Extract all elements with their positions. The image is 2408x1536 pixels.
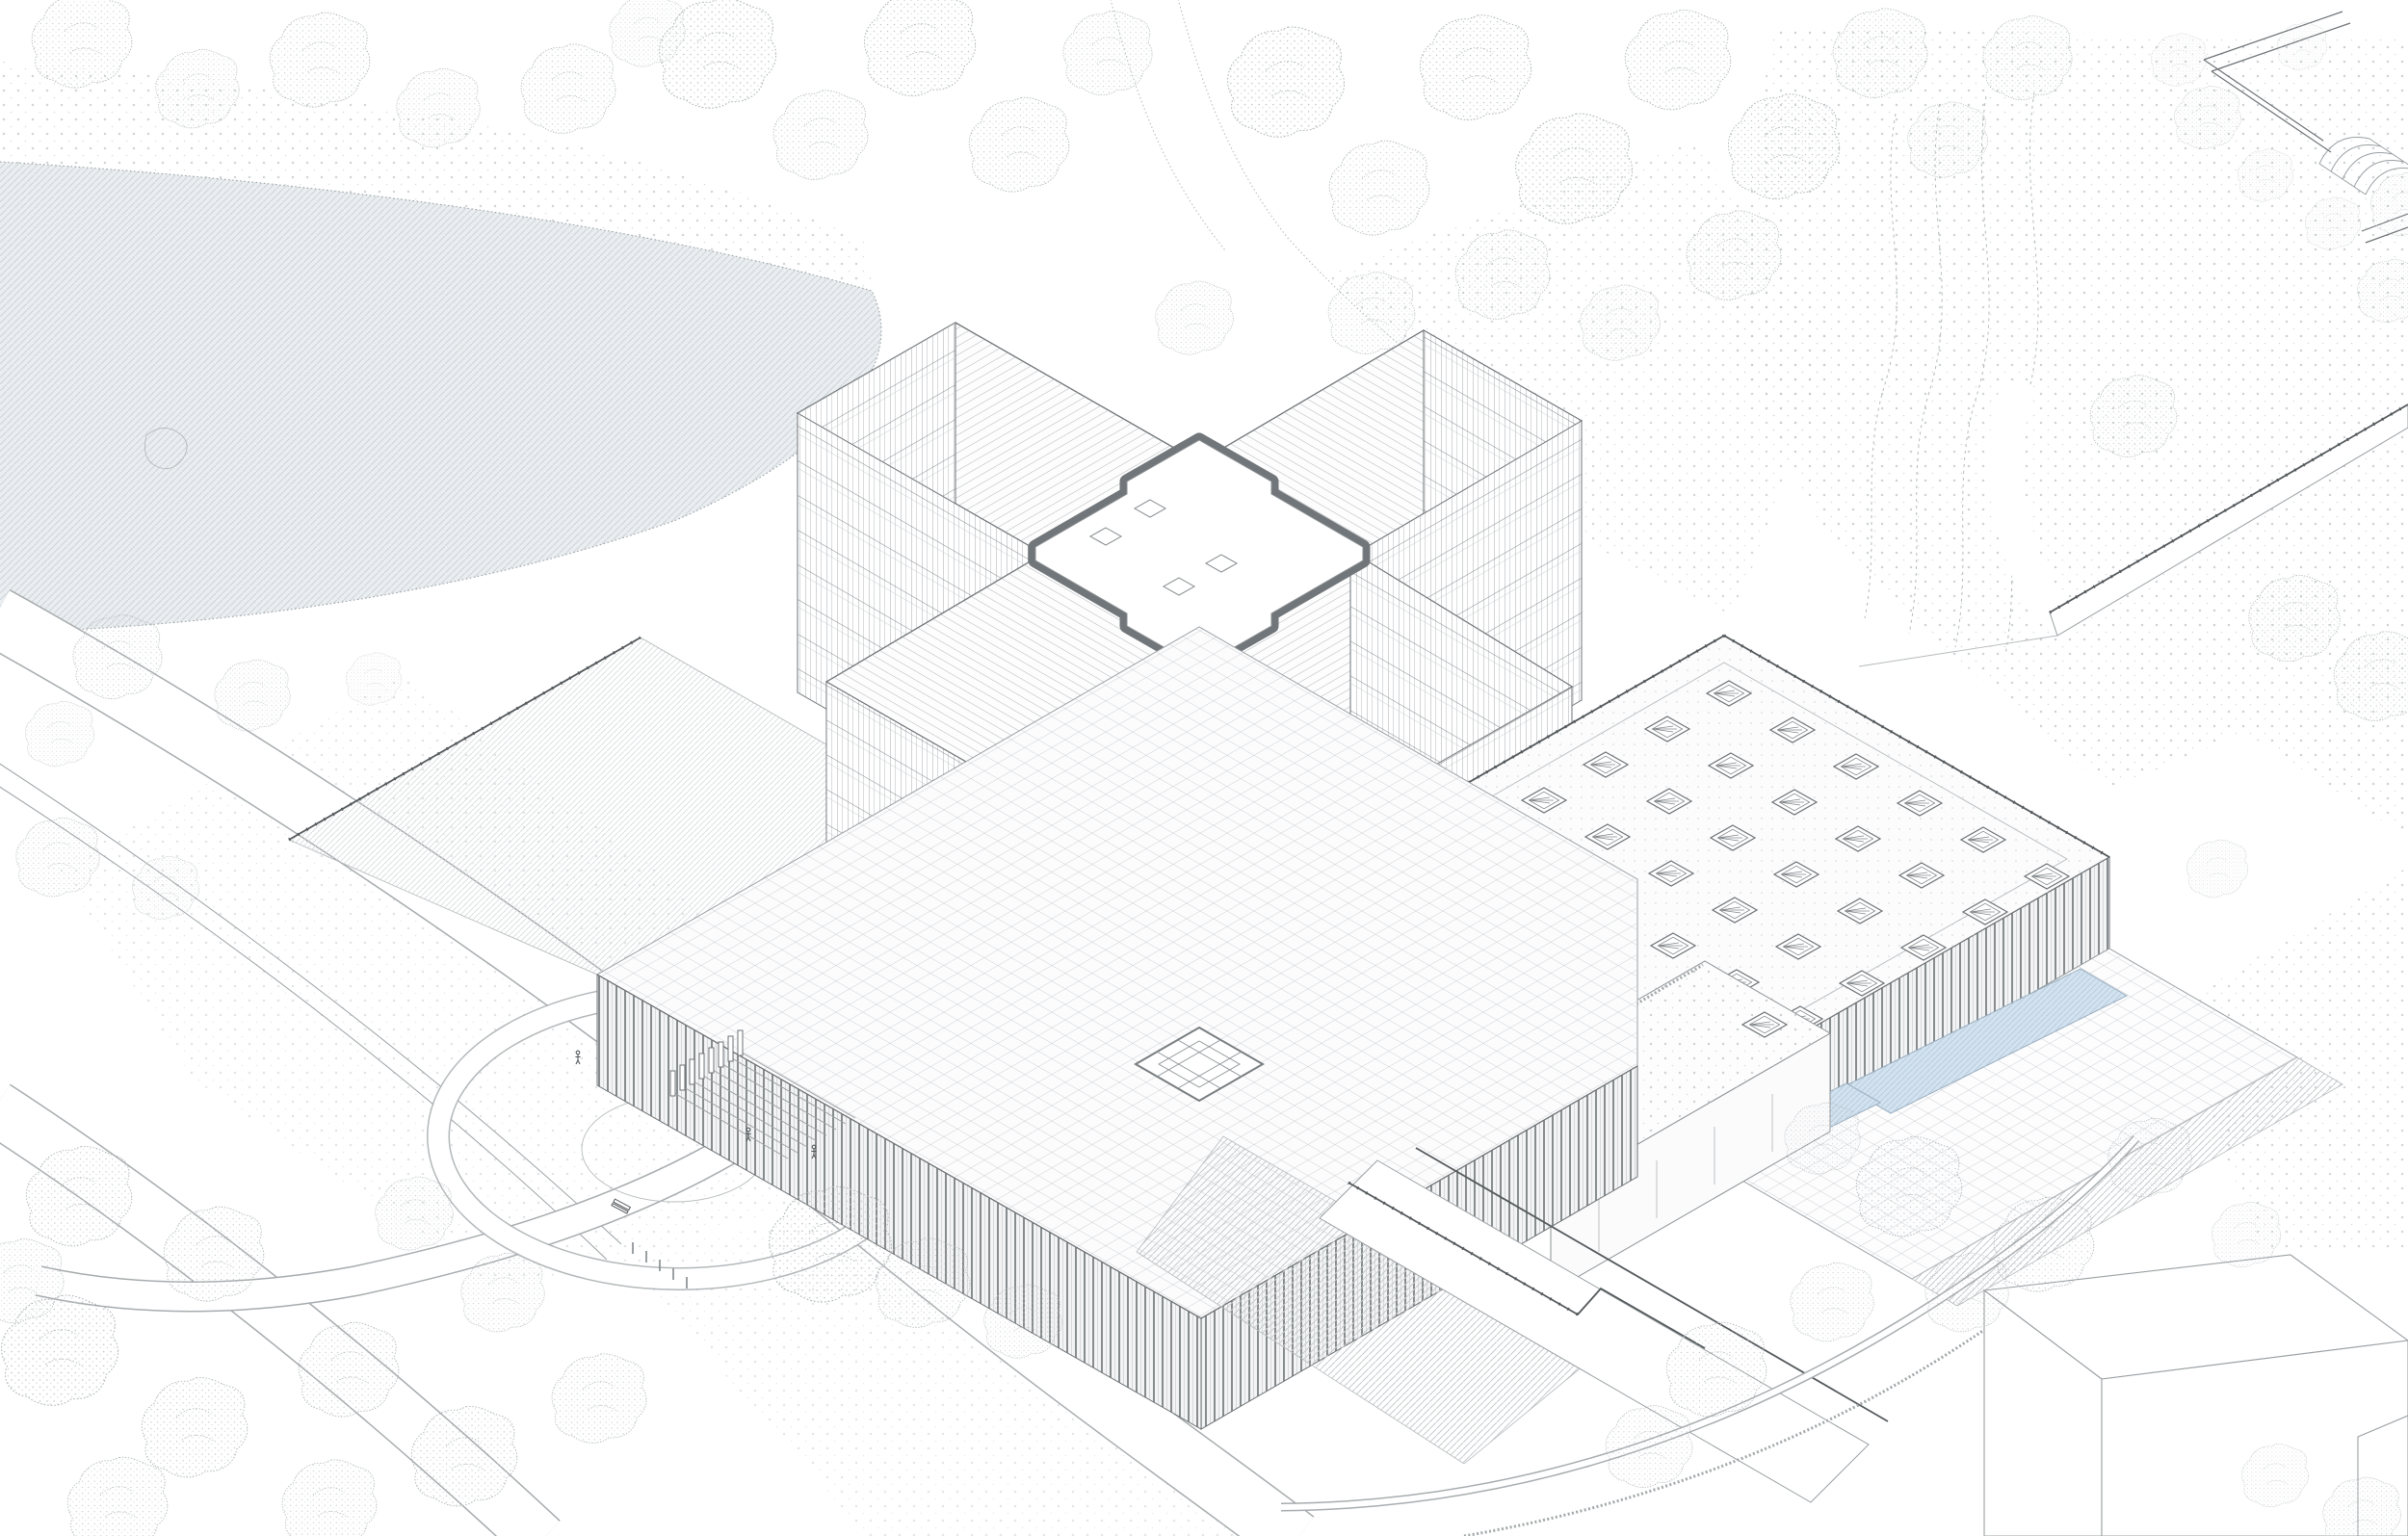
site-axonometric-drawing xyxy=(0,0,2408,1536)
drawing-canvas xyxy=(0,0,2408,1536)
